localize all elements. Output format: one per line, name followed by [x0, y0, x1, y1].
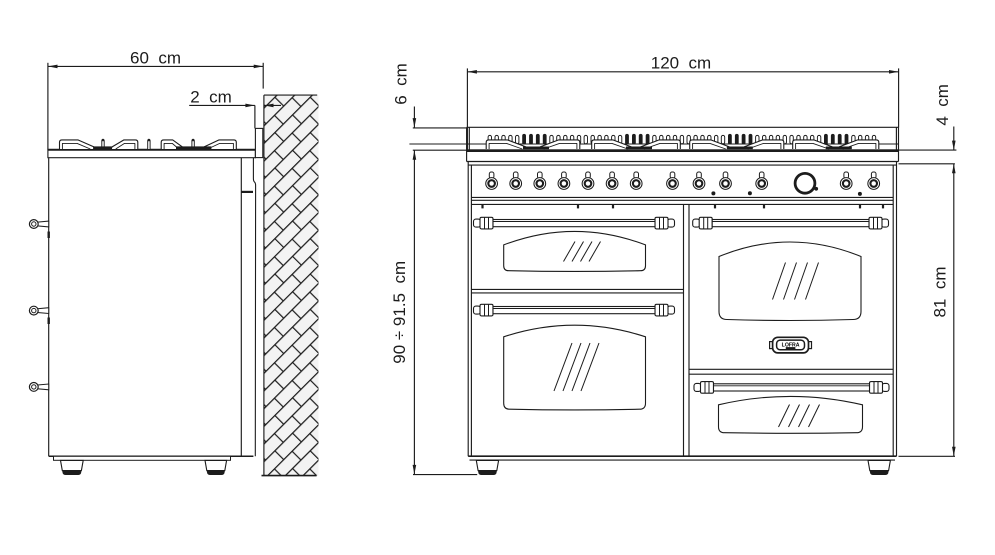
svg-text:2 cm: 2 cm [190, 88, 232, 107]
svg-text:120 cm: 120 cm [651, 54, 711, 73]
svg-text:6 cm: 6 cm [392, 63, 411, 105]
svg-text:90 ÷ 91.5 cm: 90 ÷ 91.5 cm [390, 261, 409, 364]
svg-text:81 cm: 81 cm [931, 266, 950, 317]
svg-text:4 cm: 4 cm [933, 84, 952, 126]
svg-text:60 cm: 60 cm [130, 48, 181, 67]
